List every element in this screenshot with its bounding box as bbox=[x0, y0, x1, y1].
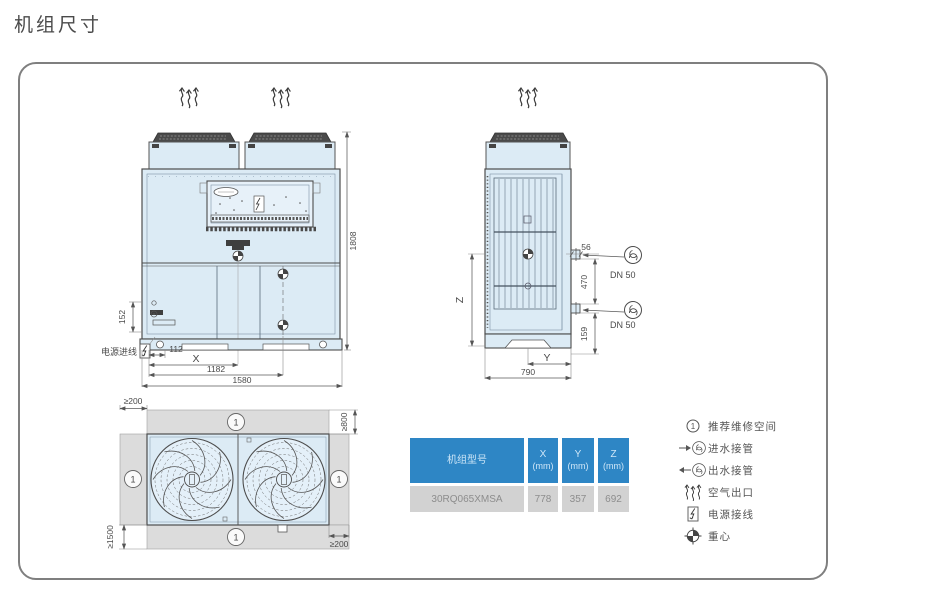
legend-item-water-inlet: 进水接管 bbox=[678, 440, 777, 456]
front-view-drawing: 1808 152 电源进线 112 X 1182 1580 bbox=[101, 88, 358, 387]
power-wiring-icon bbox=[678, 505, 708, 523]
table-header-y: Y(mm) bbox=[562, 438, 594, 483]
fan-grille bbox=[243, 439, 325, 521]
legend: 1 推荐维修空间 进水接管 出水接管 空气出口 电源接线 重心 bbox=[678, 418, 777, 550]
water-outlet-pipe-icon bbox=[625, 302, 642, 319]
dim-label-height: 1808 bbox=[348, 231, 358, 250]
legend-item-water-outlet: 出水接管 bbox=[678, 462, 777, 478]
circled-1-icon: 1 bbox=[678, 418, 708, 434]
fan-grille bbox=[151, 439, 233, 521]
dim-label-z: Z bbox=[454, 296, 466, 303]
dim-label-56: 56 bbox=[581, 242, 591, 252]
pipe-top-label: DN 50 bbox=[610, 270, 636, 280]
svg-text:1: 1 bbox=[233, 533, 238, 543]
dim-label-1580: 1580 bbox=[233, 375, 252, 385]
clearance-label-top: ≥800 bbox=[339, 412, 349, 431]
dim-label-470: 470 bbox=[579, 275, 589, 289]
air-outlet-icon bbox=[179, 88, 290, 108]
dim-label-112: 112 bbox=[169, 344, 183, 354]
water-outlet-pipe-icon bbox=[678, 461, 708, 479]
air-outlet-icon bbox=[678, 483, 708, 501]
pipe-bottom-label: DN 50 bbox=[610, 320, 636, 330]
center-of-gravity-icon bbox=[278, 320, 288, 330]
clearance-label-bottom: ≥1500 bbox=[105, 525, 115, 549]
legend-item-center-of-gravity: 重心 bbox=[678, 528, 777, 544]
legend-item-power-wiring: 电源接线 bbox=[678, 506, 777, 522]
table-header-z: Z(mm) bbox=[598, 438, 629, 483]
legend-item-air-outlet: 空气出口 bbox=[678, 484, 777, 500]
table-cell-model: 30RQ065XMSA bbox=[410, 486, 524, 512]
dim-label-790: 790 bbox=[521, 367, 535, 377]
center-of-gravity-icon bbox=[233, 251, 243, 261]
water-inlet-pipe-icon bbox=[625, 247, 642, 264]
svg-text:1: 1 bbox=[336, 475, 341, 485]
center-of-gravity-icon bbox=[678, 527, 708, 545]
center-of-gravity-icon bbox=[523, 249, 533, 259]
dim-label-152: 152 bbox=[117, 310, 127, 324]
dim-label-x: X bbox=[192, 353, 199, 365]
air-outlet-icon bbox=[518, 88, 537, 108]
table-header-x: X(mm) bbox=[528, 438, 558, 483]
side-view-drawing: DN 50 DN 50 56 470 159 Z Y 790 bbox=[454, 88, 642, 379]
page-title: 机组尺寸 bbox=[14, 10, 102, 37]
center-of-gravity-icon bbox=[278, 269, 288, 279]
datasheet-page: { "title": "机组尺寸", "front_view": { "dim_… bbox=[0, 0, 930, 595]
power-wiring-icon bbox=[140, 344, 150, 358]
top-view-drawing: 1 1 1 1 ≥200 ≥800 ≥1500 ≥200 bbox=[105, 396, 358, 549]
table-cell-x: 778 bbox=[528, 486, 558, 512]
dim-label-159: 159 bbox=[579, 327, 589, 341]
svg-text:1: 1 bbox=[691, 422, 696, 431]
dim-label-1182: 1182 bbox=[207, 364, 226, 374]
table-cell-z: 692 bbox=[598, 486, 629, 512]
svg-text:1: 1 bbox=[130, 475, 135, 485]
power-inlet-label: 电源进线 bbox=[101, 346, 137, 357]
dimension-table: 机组型号 X(mm) Y(mm) Z(mm) 30RQ065XMSA 778 3… bbox=[410, 438, 629, 512]
table-header-model: 机组型号 bbox=[410, 438, 524, 483]
clearance-label-right: ≥200 bbox=[330, 539, 349, 549]
clearance-label-left: ≥200 bbox=[124, 396, 143, 406]
table-cell-y: 357 bbox=[562, 486, 594, 512]
svg-text:1: 1 bbox=[233, 418, 238, 428]
water-inlet-pipe-icon bbox=[678, 439, 708, 457]
legend-item-service-space: 1 推荐维修空间 bbox=[678, 418, 777, 434]
dim-label-y: Y bbox=[543, 352, 550, 364]
